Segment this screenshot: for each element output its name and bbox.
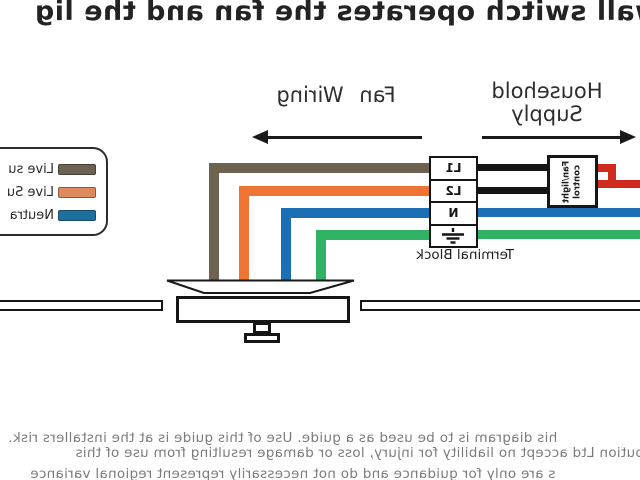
- fan-light-control-box: Fan/light control: [547, 155, 598, 208]
- terminal-earth: [431, 226, 476, 247]
- supply-earth-wire: [477, 230, 640, 239]
- household-supply-arrow: [482, 136, 622, 139]
- disclaimer-line2: ibution Ltd accept no liability for inju…: [75, 445, 640, 461]
- fixture-canopy: [165, 279, 355, 295]
- household-supply-line2: Supply: [456, 103, 638, 126]
- household-supply-line1: Household: [456, 80, 638, 103]
- legend-label-live: Live su: [8, 162, 54, 177]
- live-wire-vertical: [209, 163, 219, 281]
- supply-live-wire-run: [598, 180, 640, 188]
- control-box-line1: Fan/light: [562, 160, 573, 202]
- arrow-right-icon: [252, 130, 268, 144]
- fan-wiring-arrow: [266, 136, 422, 139]
- disclaimer-line3: s are only for guidance and do not neces…: [30, 466, 555, 480]
- legend-swatch-neutral: [58, 210, 96, 221]
- link-wire-l1: [477, 164, 553, 171]
- fan-blade-left: [360, 300, 640, 311]
- legend-label-neutral: Neutra: [10, 208, 54, 223]
- disclaimer-line1: his diagram is to be used as a guide. Us…: [8, 430, 557, 446]
- neutral-wire-horizontal: [281, 208, 433, 218]
- switched-live-wire-horizontal: [239, 186, 433, 196]
- terminal-l1: L1: [431, 158, 476, 181]
- legend: Live su Live Su Neutra: [0, 147, 108, 236]
- fan-motor-body: [176, 296, 350, 323]
- switched-live-wire-vertical: [239, 186, 249, 281]
- supply-live-wire-riser: [608, 164, 616, 188]
- live-wire-horizontal: [209, 163, 433, 173]
- fan-blade-right: [0, 300, 163, 311]
- earth-symbol-icon: [441, 227, 467, 245]
- earth-wire-vertical: [316, 230, 326, 281]
- household-supply-label: Household Supply: [456, 80, 638, 126]
- arrow-left-icon: [620, 130, 636, 144]
- legend-swatch-live: [58, 164, 96, 175]
- legend-swatch-switched-live: [58, 187, 96, 198]
- legend-label-switched-live: Live Su: [7, 185, 54, 200]
- terminal-n: N: [431, 203, 476, 226]
- light-fitting-base: [244, 333, 280, 343]
- page-title: wall switch operates the fan and the lig: [34, 0, 640, 27]
- control-box-line2: control: [573, 160, 584, 202]
- supply-neutral-wire: [477, 208, 640, 217]
- fan-light-control-text: Fan/light control: [562, 160, 583, 202]
- fan-wiring-label: Fan Wiring: [245, 84, 427, 107]
- link-wire-l2: [477, 187, 553, 194]
- earth-wire-horizontal: [316, 230, 433, 240]
- neutral-wire-vertical: [281, 208, 291, 281]
- terminal-block-label: Terminal Block: [408, 247, 522, 263]
- terminal-block: L1 L2 N: [429, 156, 478, 248]
- mirrored-wiring-diagram: wall switch operates the fan and the lig…: [0, 0, 640, 480]
- terminal-l2: L2: [431, 181, 476, 204]
